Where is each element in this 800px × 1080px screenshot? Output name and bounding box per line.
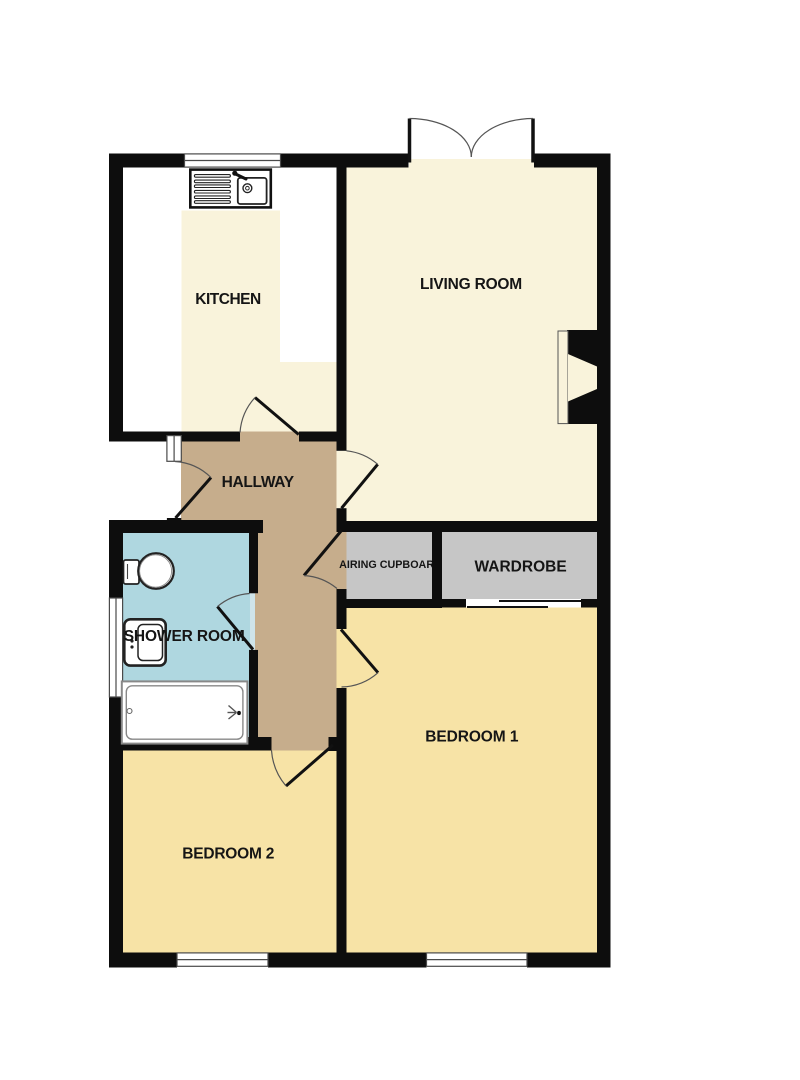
svg-text:WARDROBE: WARDROBE <box>475 559 567 576</box>
svg-text:BEDROOM 1: BEDROOM 1 <box>425 729 519 746</box>
svg-text:AIRING CUPBOARD: AIRING CUPBOARD <box>339 559 442 571</box>
svg-text:KITCHEN: KITCHEN <box>195 291 261 308</box>
svg-text:SHOWER ROOM: SHOWER ROOM <box>124 628 245 645</box>
svg-text:LIVING ROOM: LIVING ROOM <box>420 276 522 293</box>
svg-text:BEDROOM 2: BEDROOM 2 <box>182 845 274 862</box>
svg-text:HALLWAY: HALLWAY <box>222 474 295 491</box>
